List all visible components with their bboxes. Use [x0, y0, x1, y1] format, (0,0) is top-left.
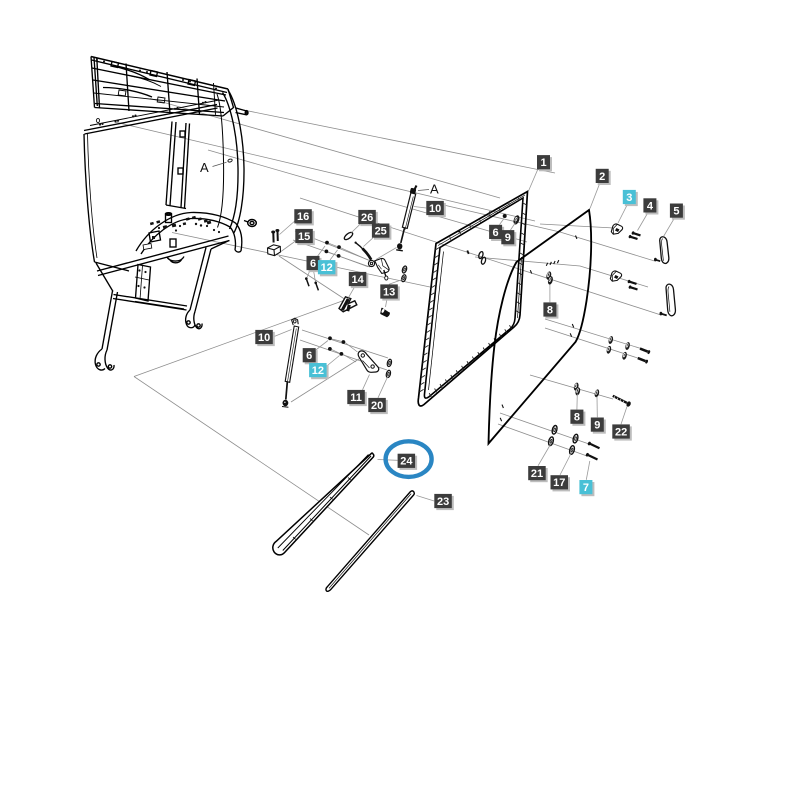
- svg-text:20: 20: [371, 400, 383, 412]
- svg-text:13: 13: [383, 286, 395, 298]
- svg-text:2: 2: [599, 171, 605, 183]
- svg-text:9: 9: [594, 420, 600, 432]
- svg-text:25: 25: [375, 226, 387, 238]
- svg-text:A: A: [430, 182, 439, 197]
- svg-text:8: 8: [574, 412, 580, 424]
- svg-text:15: 15: [298, 231, 310, 243]
- svg-text:10: 10: [429, 203, 441, 215]
- svg-text:26: 26: [361, 212, 373, 224]
- svg-text:5: 5: [673, 206, 679, 218]
- svg-text:14: 14: [351, 274, 364, 286]
- svg-text:17: 17: [553, 477, 565, 489]
- svg-text:12: 12: [312, 365, 324, 377]
- svg-text:4: 4: [647, 200, 654, 212]
- svg-text:1: 1: [540, 157, 546, 169]
- svg-text:16: 16: [297, 211, 309, 223]
- svg-text:6: 6: [493, 227, 499, 239]
- svg-text:23: 23: [437, 496, 449, 508]
- svg-text:6: 6: [310, 258, 316, 270]
- svg-text:10: 10: [258, 332, 270, 344]
- svg-text:12: 12: [321, 262, 333, 274]
- svg-text:6: 6: [306, 350, 312, 362]
- svg-text:8: 8: [547, 304, 553, 316]
- svg-text:24: 24: [400, 456, 413, 468]
- svg-text:7: 7: [583, 482, 589, 494]
- svg-text:3: 3: [626, 192, 632, 204]
- svg-text:9: 9: [505, 232, 511, 244]
- svg-text:21: 21: [531, 468, 543, 480]
- svg-text:A: A: [200, 160, 209, 175]
- svg-text:22: 22: [615, 426, 627, 438]
- svg-text:11: 11: [350, 392, 362, 404]
